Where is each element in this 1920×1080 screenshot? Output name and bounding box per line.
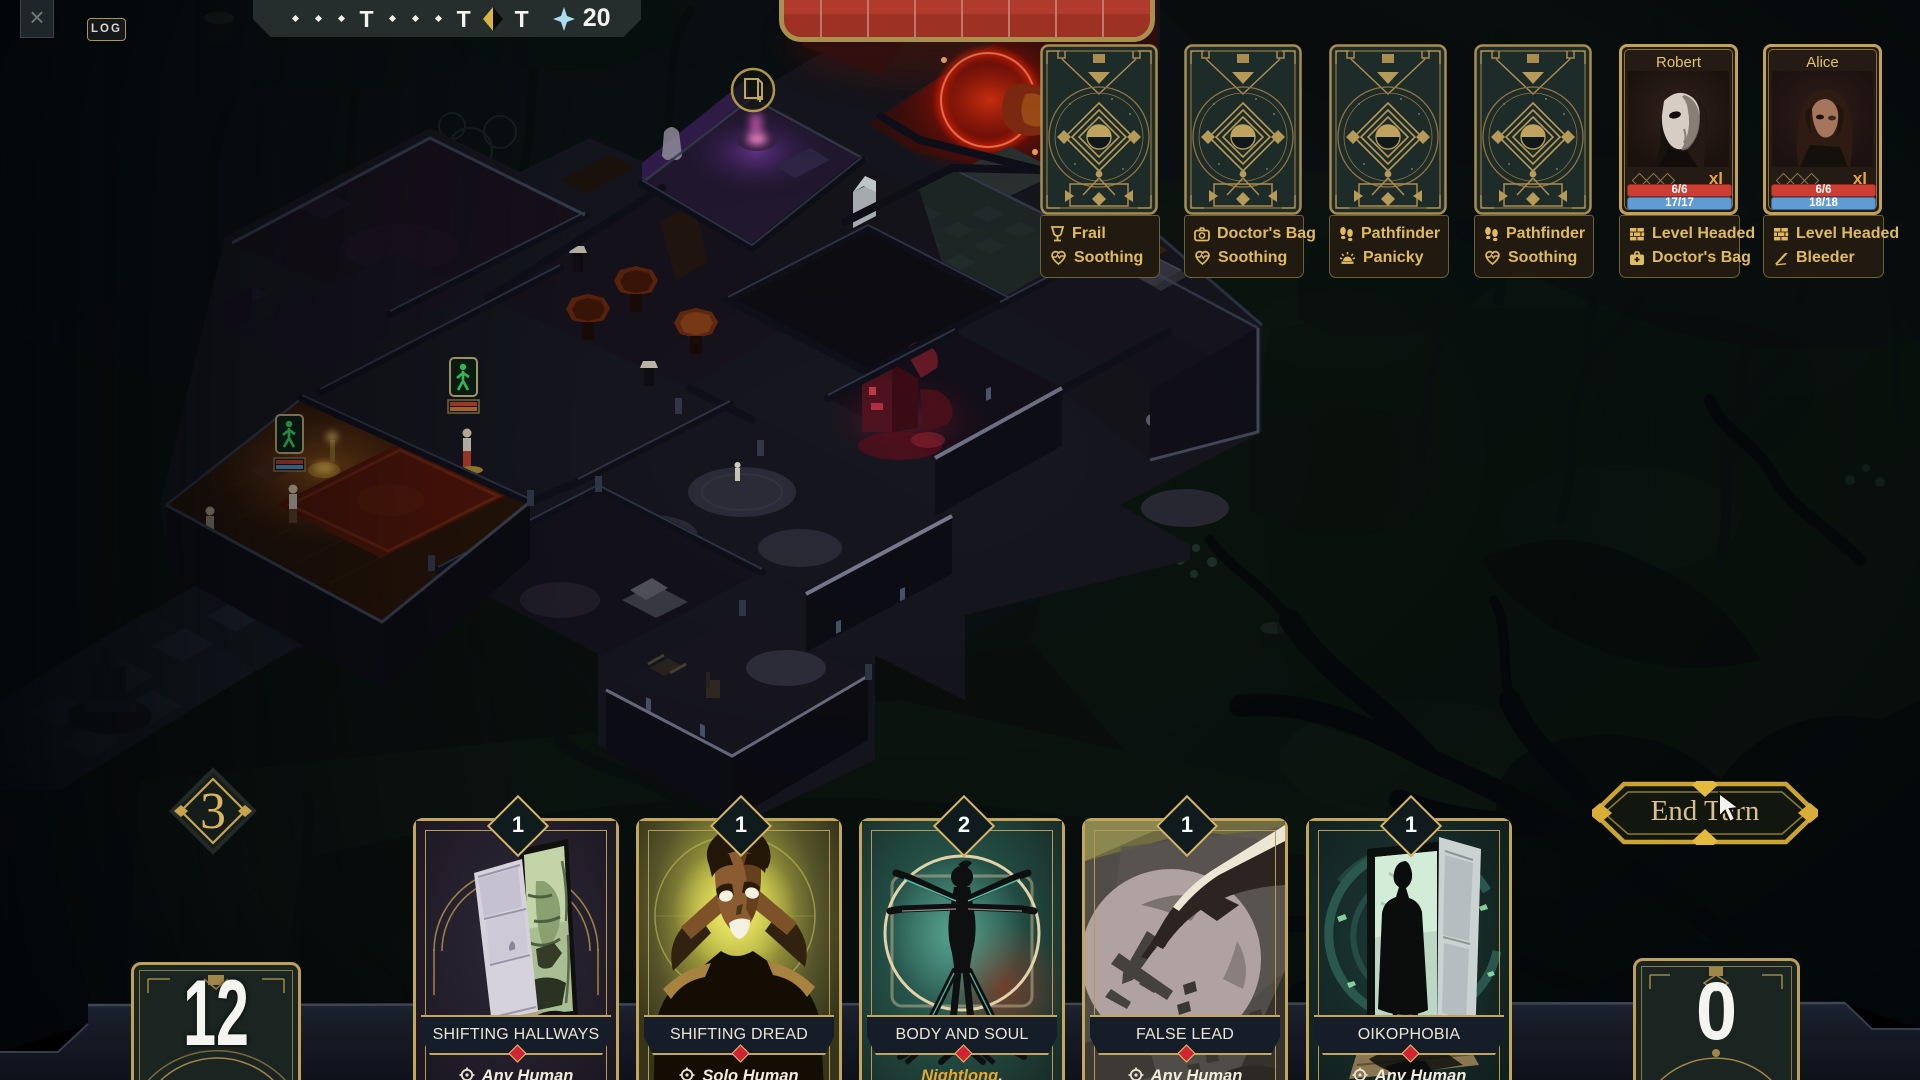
svg-text:3: 3 xyxy=(200,783,226,840)
